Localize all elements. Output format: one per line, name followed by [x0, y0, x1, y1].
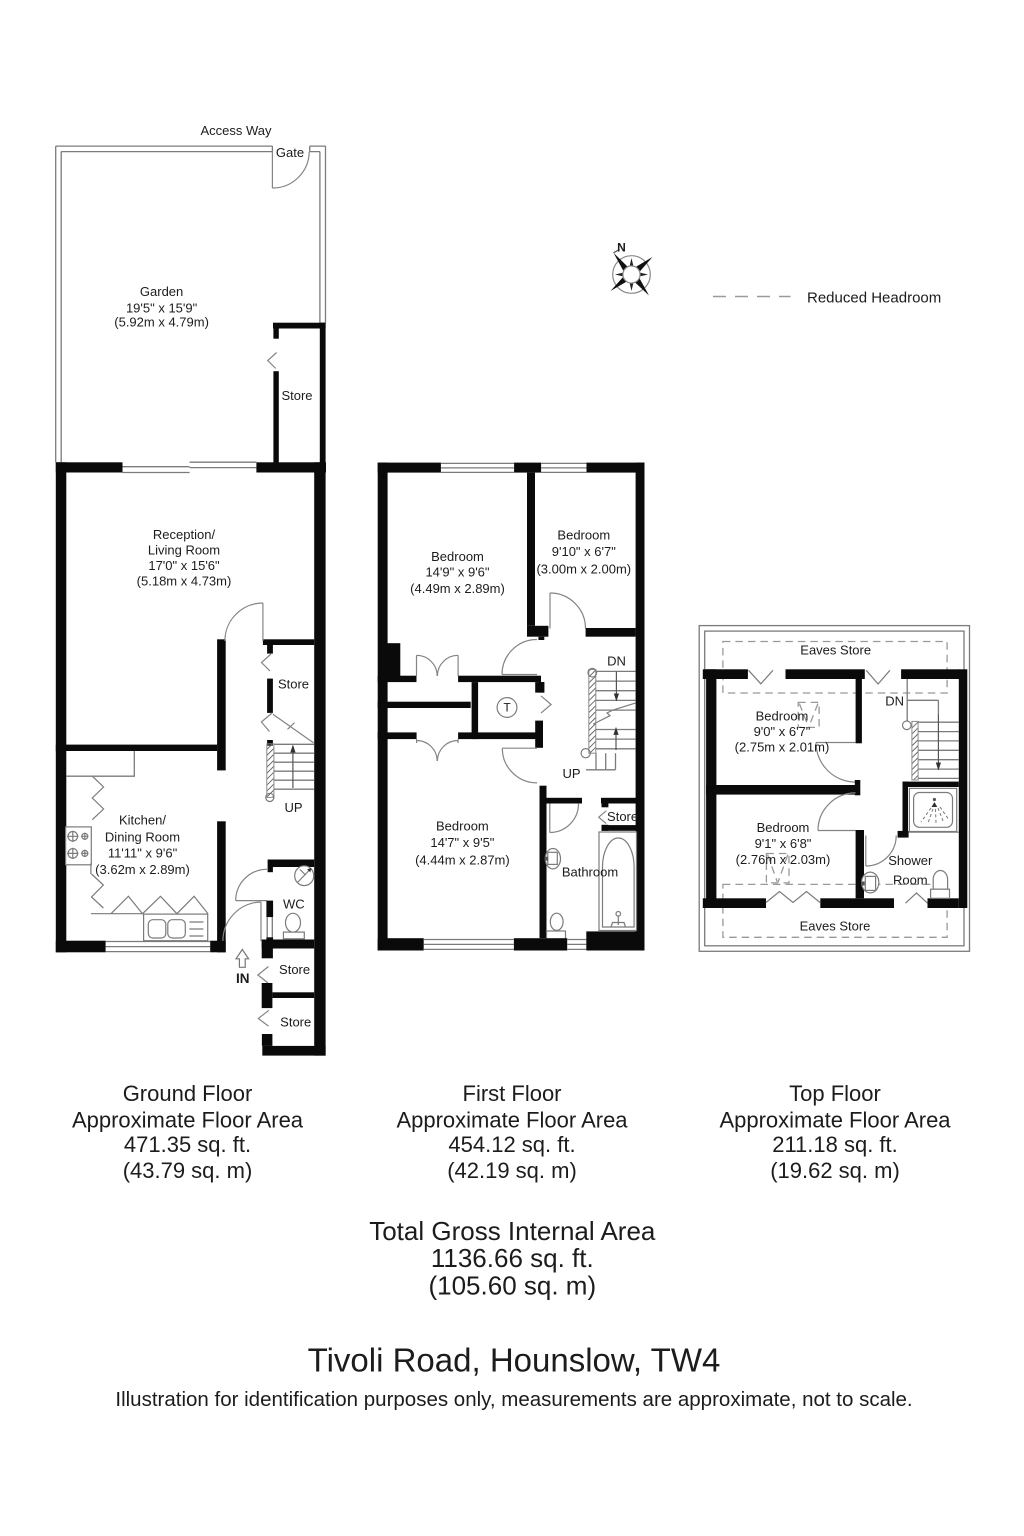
svg-text:Room: Room	[893, 872, 928, 887]
svg-text:Ground Floor: Ground Floor	[123, 1081, 253, 1106]
svg-text:Living Room: Living Room	[148, 543, 220, 558]
svg-text:Eaves Store: Eaves Store	[800, 919, 871, 934]
svg-text:Bedroom: Bedroom	[431, 549, 484, 564]
svg-text:UP: UP	[284, 800, 302, 815]
svg-text:UP: UP	[562, 766, 580, 781]
svg-text:Bathroom: Bathroom	[562, 865, 618, 880]
svg-text:(5.18m x 4.73m): (5.18m x 4.73m)	[137, 574, 232, 589]
svg-text:(3.00m x 2.00m): (3.00m x 2.00m)	[536, 562, 631, 577]
svg-text:T: T	[503, 701, 511, 715]
svg-text:Approximate Floor Area: Approximate Floor Area	[396, 1108, 628, 1133]
svg-text:Store: Store	[281, 388, 312, 403]
svg-text:Approximate Floor Area: Approximate Floor Area	[72, 1108, 304, 1133]
svg-text:DN: DN	[607, 654, 626, 669]
svg-text:IN: IN	[236, 971, 250, 986]
svg-text:14'9" x 9'6": 14'9" x 9'6"	[425, 565, 489, 580]
svg-text:Tivoli Road, Hounslow, TW4: Tivoli Road, Hounslow, TW4	[308, 1342, 721, 1379]
svg-text:1136.66 sq. ft.: 1136.66 sq. ft.	[431, 1243, 594, 1273]
svg-text:Bedroom: Bedroom	[436, 819, 489, 834]
svg-text:Bedroom: Bedroom	[757, 820, 810, 835]
svg-text:9'1" x 6'8": 9'1" x 6'8"	[755, 836, 812, 851]
svg-text:Illustration for identificatio: Illustration for identification purposes…	[115, 1388, 912, 1411]
svg-text:471.35 sq. ft.: 471.35 sq. ft.	[124, 1132, 251, 1157]
svg-text:(19.62 sq. m): (19.62 sq. m)	[770, 1158, 900, 1183]
svg-text:(2.76m x 2.03m): (2.76m x 2.03m)	[736, 852, 831, 867]
svg-text:Kitchen/: Kitchen/	[119, 813, 166, 828]
svg-text:(105.60 sq. m): (105.60 sq. m)	[428, 1271, 596, 1301]
svg-text:19'5" x 15'9": 19'5" x 15'9"	[126, 300, 198, 315]
svg-text:Store: Store	[278, 676, 309, 691]
svg-text:Approximate Floor Area: Approximate Floor Area	[719, 1108, 951, 1133]
svg-text:454.12 sq. ft.: 454.12 sq. ft.	[448, 1132, 575, 1157]
svg-text:First Floor: First Floor	[463, 1081, 562, 1106]
svg-text:Store: Store	[279, 962, 310, 977]
svg-text:(42.19 sq. m): (42.19 sq. m)	[447, 1158, 577, 1183]
svg-text:Dining Room: Dining Room	[105, 830, 180, 845]
svg-text:Total Gross Internal Area: Total Gross Internal Area	[369, 1216, 656, 1246]
svg-text:9'0" x 6'7": 9'0" x 6'7"	[754, 724, 811, 739]
svg-text:211.18 sq. ft.: 211.18 sq. ft.	[772, 1132, 898, 1157]
svg-text:(4.49m x 2.89m): (4.49m x 2.89m)	[410, 581, 505, 596]
svg-text:Store: Store	[280, 1015, 311, 1030]
svg-text:(2.75m x 2.01m): (2.75m x 2.01m)	[735, 740, 830, 755]
svg-text:Top Floor: Top Floor	[789, 1081, 881, 1106]
svg-text:(3.62m x 2.89m): (3.62m x 2.89m)	[95, 862, 190, 877]
svg-text:Garden: Garden	[140, 284, 183, 299]
svg-text:Shower: Shower	[888, 853, 933, 868]
svg-text:Bedroom: Bedroom	[756, 709, 809, 724]
svg-text:Gate: Gate	[276, 145, 304, 160]
svg-text:(43.79 sq. m): (43.79 sq. m)	[123, 1158, 253, 1183]
svg-text:Access Way: Access Way	[200, 123, 272, 138]
svg-text:17'0" x 15'6": 17'0" x 15'6"	[148, 558, 220, 573]
svg-text:Bedroom: Bedroom	[557, 528, 610, 543]
svg-text:DN: DN	[885, 694, 904, 709]
svg-text:N: N	[617, 241, 626, 255]
svg-text:Reception/: Reception/	[153, 527, 216, 542]
svg-text:Store: Store	[607, 809, 638, 824]
svg-text:9'10" x 6'7": 9'10" x 6'7"	[552, 544, 616, 559]
svg-text:WC: WC	[283, 897, 305, 912]
svg-text:(4.44m x 2.87m): (4.44m x 2.87m)	[415, 853, 510, 868]
svg-text:Eaves Store: Eaves Store	[800, 643, 871, 658]
svg-text:14'7" x 9'5": 14'7" x 9'5"	[430, 835, 494, 850]
svg-text:(5.92m x 4.79m): (5.92m x 4.79m)	[114, 315, 209, 330]
svg-text:11'11" x 9'6": 11'11" x 9'6"	[108, 846, 178, 861]
svg-text:Reduced Headroom: Reduced Headroom	[807, 290, 941, 307]
